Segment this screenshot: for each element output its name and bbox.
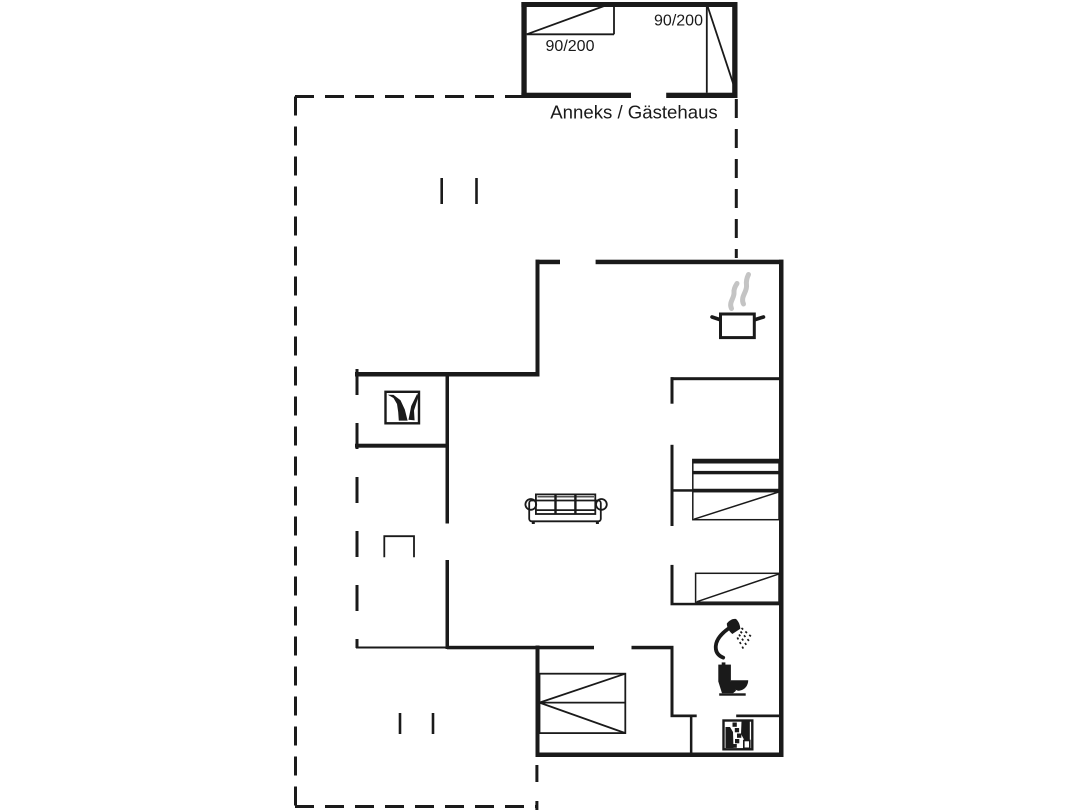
svg-text:90/200: 90/200 — [654, 13, 703, 30]
svg-text:90/200: 90/200 — [546, 38, 595, 55]
svg-text:Anneks / Gästehaus: Anneks / Gästehaus — [550, 102, 717, 123]
